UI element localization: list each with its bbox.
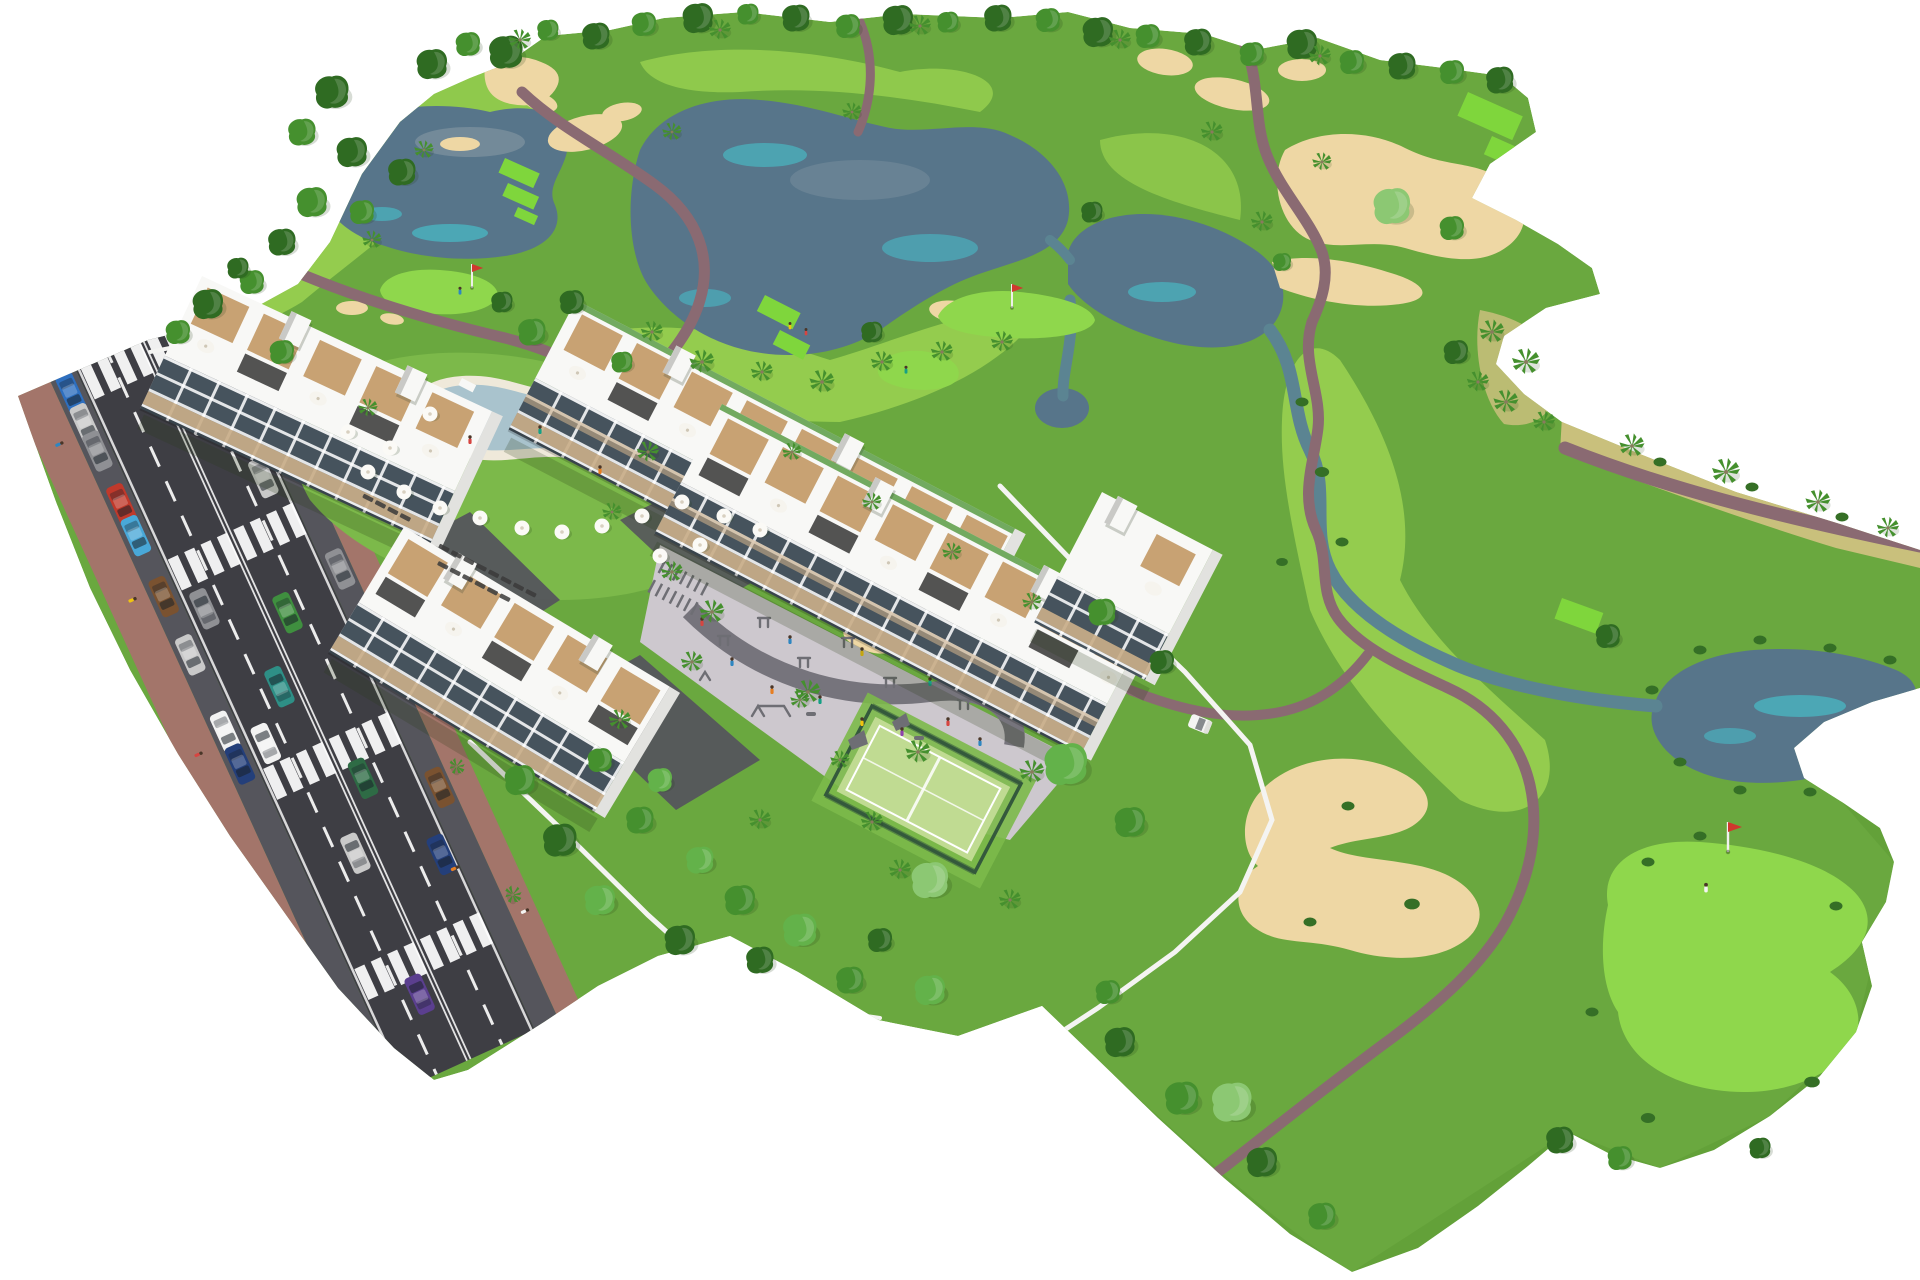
golfer-walking — [805, 328, 808, 335]
resort-aerial-render — [0, 0, 1920, 1280]
putting-green — [1603, 842, 1868, 1092]
golfer — [458, 287, 461, 295]
render-canvas — [0, 0, 1920, 1280]
golfer — [904, 366, 907, 374]
swimmer — [468, 435, 471, 444]
lake — [1652, 649, 1917, 783]
pool-guest — [598, 465, 601, 474]
pedestrian — [270, 908, 279, 915]
golfer-walking — [789, 322, 792, 329]
swimmer — [538, 425, 541, 434]
golfer — [1704, 883, 1708, 893]
